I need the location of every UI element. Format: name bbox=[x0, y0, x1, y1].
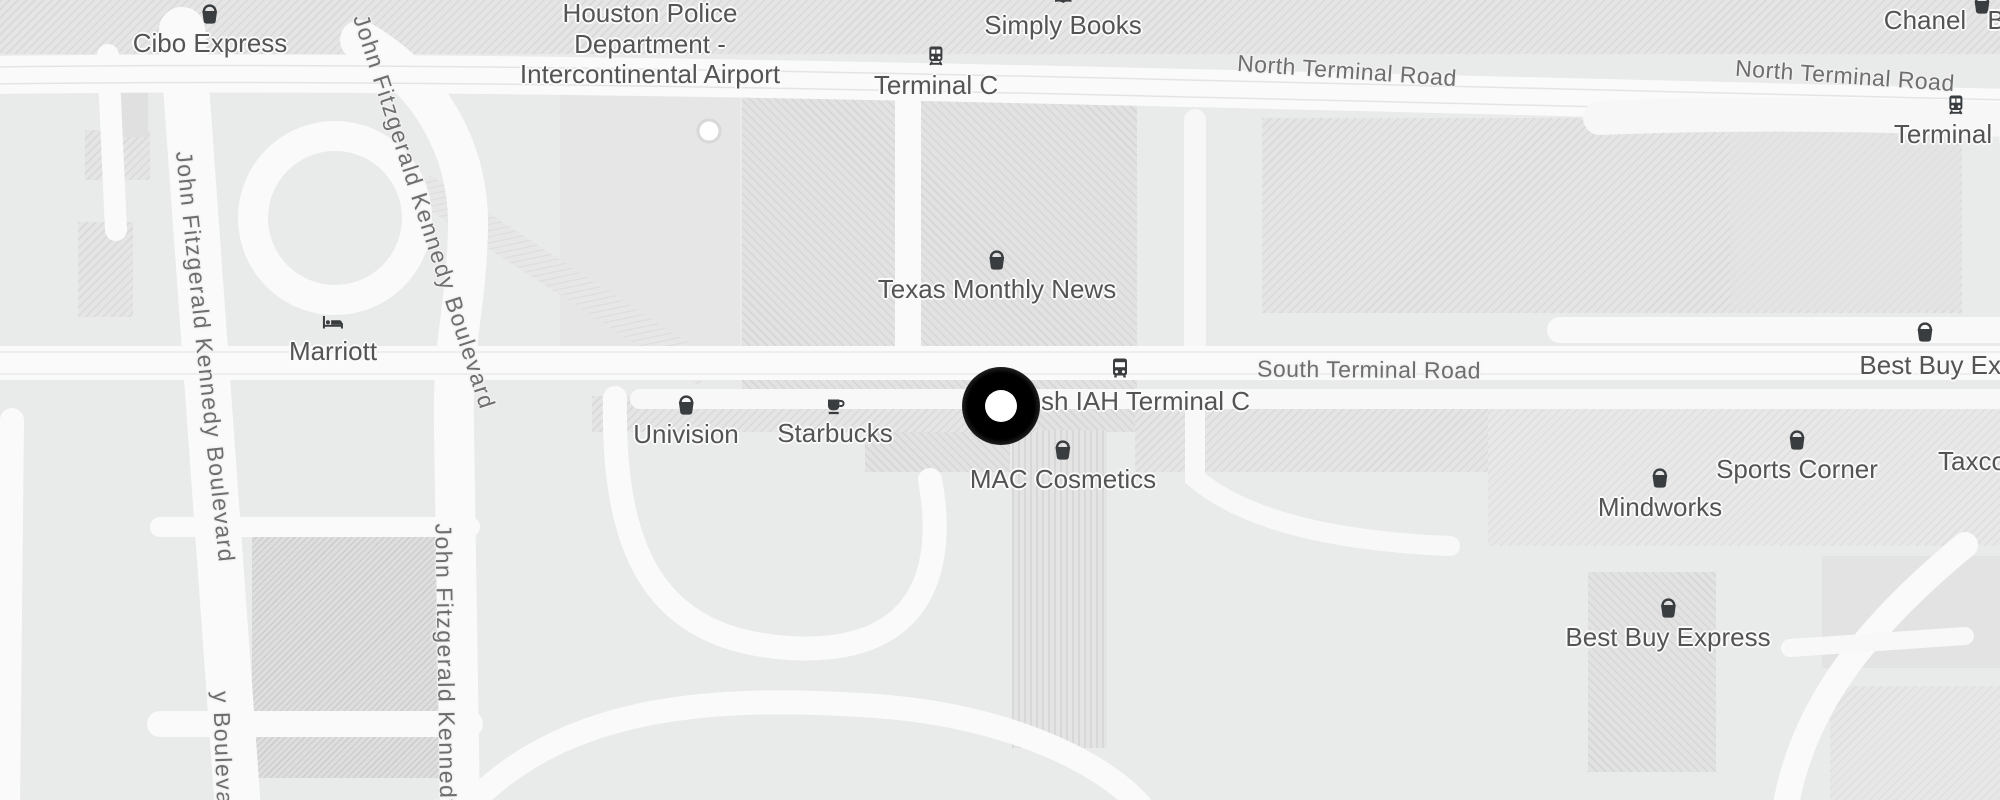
map-canvas[interactable]: North Terminal Road North Terminal Road … bbox=[0, 0, 2000, 800]
building-block bbox=[1830, 686, 2000, 800]
shopping-bag-icon bbox=[1913, 320, 1937, 344]
road-label-north-terminal-road: North Terminal Road bbox=[1236, 50, 1457, 92]
poi-simply-books[interactable]: Simply Books bbox=[984, 0, 1142, 41]
poi-cibo-express[interactable]: Cibo Express bbox=[133, 2, 288, 59]
shopping-bag-icon bbox=[1648, 466, 1672, 490]
building-block bbox=[85, 130, 150, 180]
bus-icon bbox=[1108, 356, 1132, 380]
poi-terminal-d-station[interactable]: Terminal D bbox=[1894, 93, 2000, 150]
poi-univision[interactable]: Univision bbox=[633, 393, 739, 450]
coffee-cup-icon bbox=[823, 392, 847, 416]
poi-best-buy-express-south[interactable]: Best Buy Express bbox=[1565, 596, 1770, 653]
road-label-jfk-boulevard-partial: y Boulevard bbox=[207, 691, 239, 800]
bed-icon bbox=[321, 310, 345, 334]
shopping-bag-icon bbox=[1656, 596, 1680, 620]
train-station-icon bbox=[1944, 93, 1968, 117]
building-block bbox=[108, 92, 148, 137]
poi-best-buy-express-east-label[interactable]: Best Buy Express bbox=[1859, 350, 2000, 381]
road-label-north-terminal-road: North Terminal Road bbox=[1734, 55, 1955, 97]
building-block bbox=[78, 222, 133, 317]
shopping-bag-icon bbox=[674, 393, 698, 417]
shopping-bag-icon bbox=[198, 2, 222, 26]
road-label-south-terminal-road: South Terminal Road bbox=[1257, 356, 1481, 385]
poi-sports-corner[interactable]: Sports Corner bbox=[1716, 428, 1878, 485]
poi-terminal-c-station[interactable]: Terminal C bbox=[874, 44, 998, 101]
road-label-jfk-boulevard: John Fitzgerald Kennedy Boulevard bbox=[170, 150, 240, 564]
building-block bbox=[1822, 556, 2000, 668]
shopping-bag-icon bbox=[1051, 438, 1075, 462]
poi-mindworks[interactable]: Mindworks bbox=[1598, 466, 1722, 523]
location-marker[interactable] bbox=[962, 367, 1040, 445]
poi-houston-police-department[interactable]: Houston Police Department - Intercontine… bbox=[520, 0, 780, 90]
poi-mac-cosmetics[interactable]: MAC Cosmetics bbox=[970, 438, 1156, 495]
poi-starbucks[interactable]: Starbucks bbox=[777, 392, 893, 449]
book-icon bbox=[1051, 0, 1075, 8]
terminal-c-building bbox=[742, 82, 1137, 347]
train-station-icon bbox=[924, 44, 948, 68]
shopping-bag-icon bbox=[1785, 428, 1809, 452]
poi-partial-label: B bbox=[1987, 5, 2000, 36]
poi-chanel[interactable]: Chanel bbox=[1884, 5, 1966, 36]
shopping-bag-icon bbox=[985, 248, 1009, 272]
poi-taxco[interactable]: Taxco bbox=[1938, 446, 2000, 477]
poi-texas-monthly-news[interactable]: Texas Monthly News bbox=[878, 248, 1116, 305]
location-marker-center bbox=[985, 390, 1017, 422]
poi-bus-stop-icon[interactable] bbox=[1108, 356, 1132, 382]
poi-best-buy-express-east[interactable] bbox=[1913, 320, 1937, 346]
poi-bus-stop-iah-terminal-c[interactable]: sh IAH Terminal C bbox=[1041, 386, 1250, 417]
poi-marriott[interactable]: Marriott bbox=[289, 310, 377, 367]
building-block bbox=[1730, 130, 1960, 310]
